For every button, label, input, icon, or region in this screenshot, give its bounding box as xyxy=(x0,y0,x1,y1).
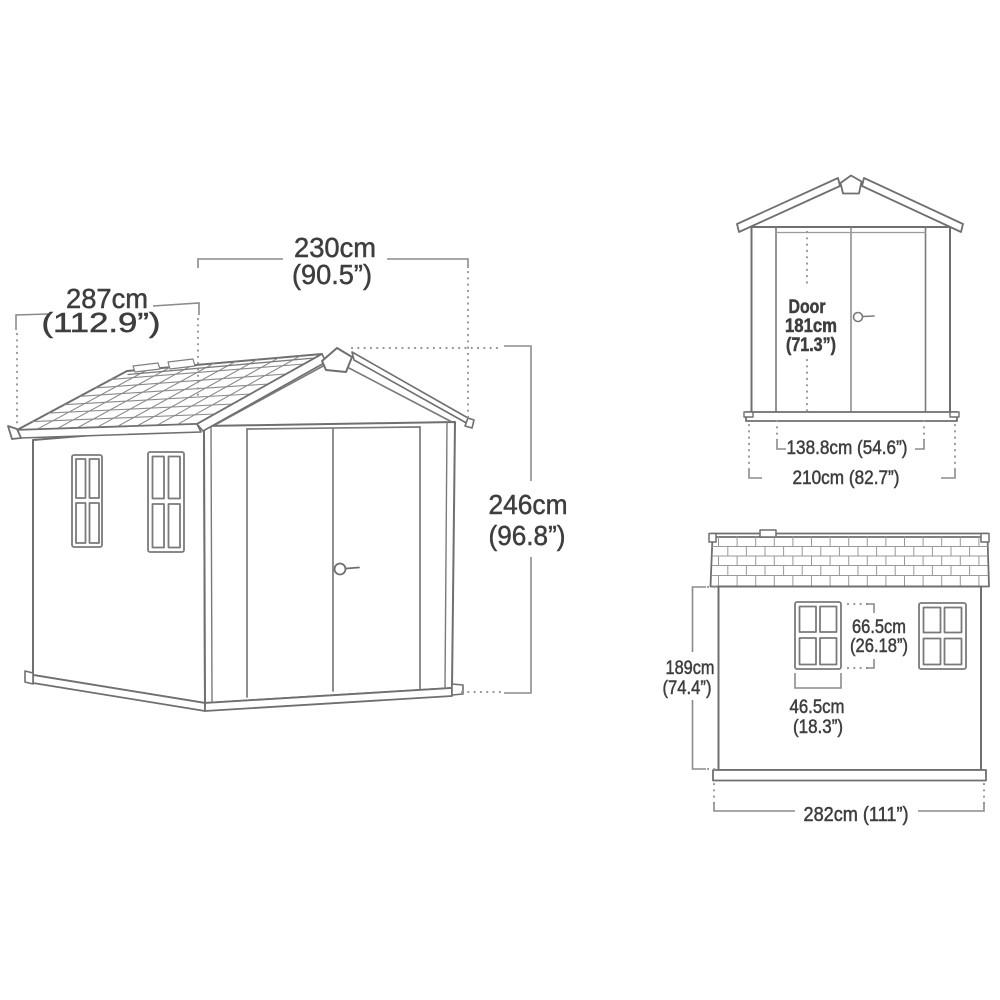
svg-text:138.8cm (54.6”): 138.8cm (54.6”) xyxy=(787,438,908,459)
svg-text:210cm (82.7”): 210cm (82.7”) xyxy=(793,468,900,489)
svg-text:(18.3”): (18.3”) xyxy=(793,717,843,738)
svg-text:(90.5”): (90.5”) xyxy=(292,259,372,290)
svg-text:246cm: 246cm xyxy=(489,489,568,520)
svg-text:Door: Door xyxy=(789,297,827,318)
svg-text:(96.8”): (96.8”) xyxy=(489,520,566,551)
svg-text:181cm: 181cm xyxy=(785,316,837,337)
svg-text:(74.4”): (74.4”) xyxy=(663,678,712,699)
svg-text:282cm (111”): 282cm (111”) xyxy=(804,804,909,826)
svg-text:66.5cm: 66.5cm xyxy=(852,617,906,638)
svg-text:(112.9”): (112.9”) xyxy=(42,307,161,338)
svg-text:46.5cm: 46.5cm xyxy=(790,697,845,718)
svg-text:(26.18”): (26.18”) xyxy=(850,636,908,657)
svg-text:189cm: 189cm xyxy=(666,658,715,679)
svg-text:(71.3”): (71.3”) xyxy=(786,335,836,356)
